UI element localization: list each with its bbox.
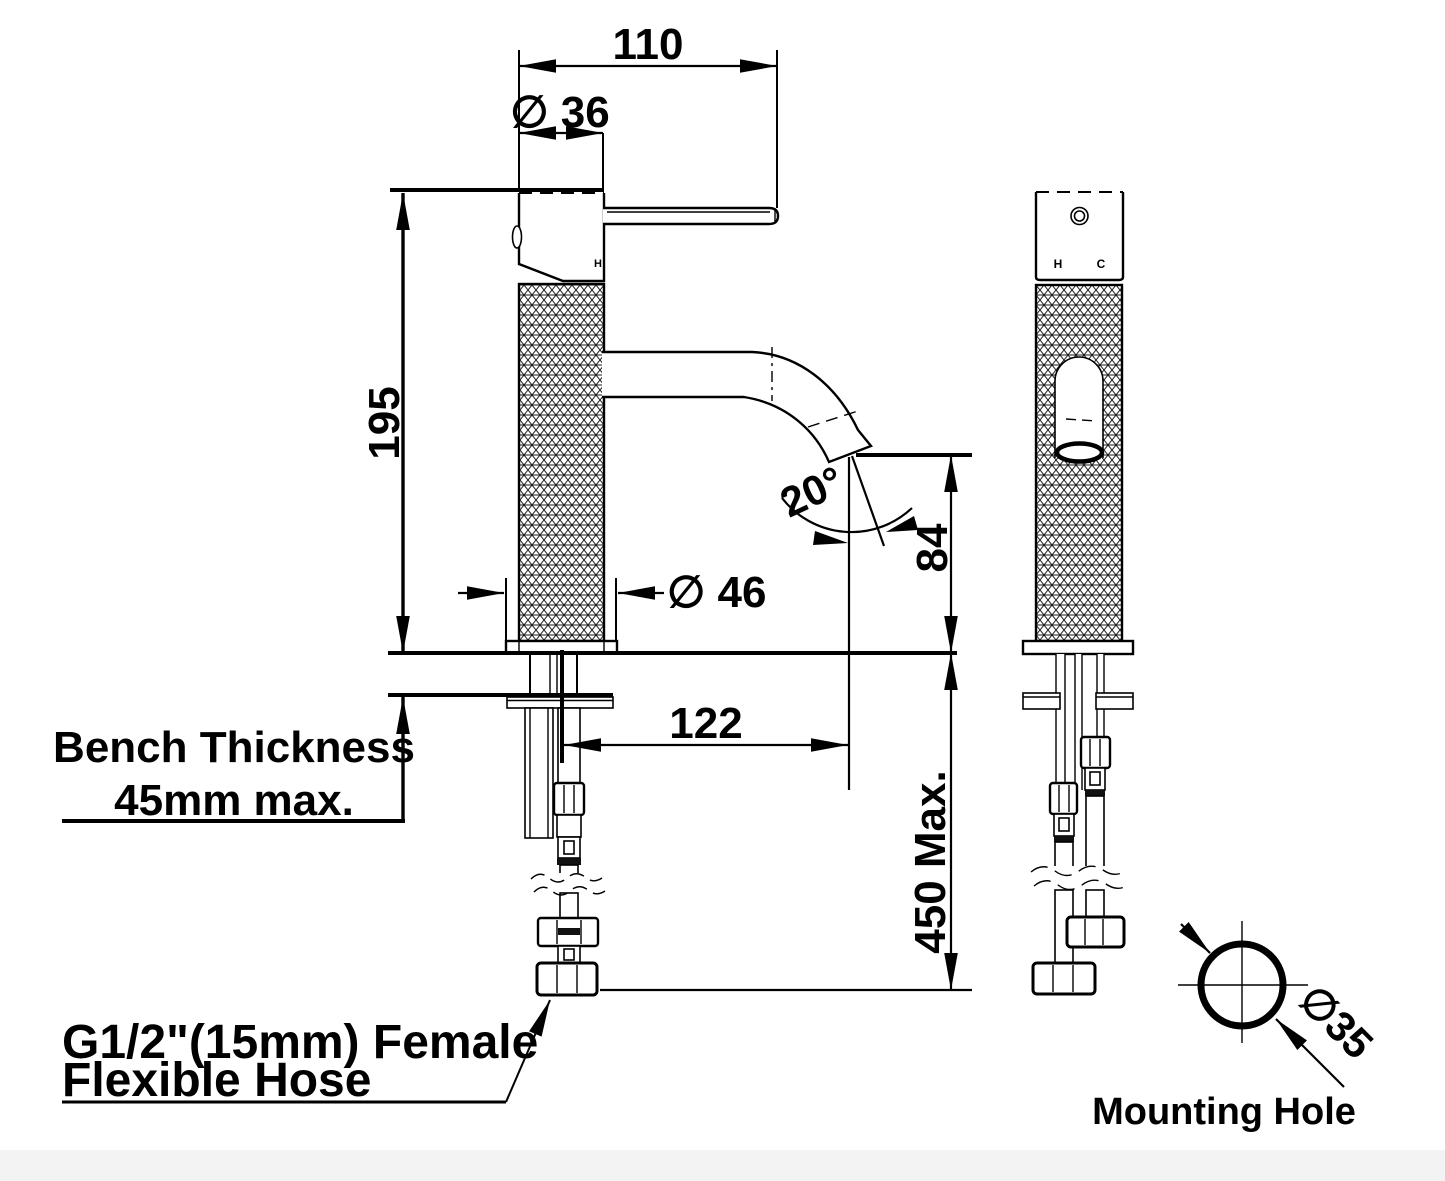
pivot-pin (513, 226, 522, 248)
dim-36-text: ∅ 36 (510, 88, 610, 137)
base-plate-front (1023, 641, 1133, 654)
shank-tube (525, 708, 553, 838)
spout-nozzle (1057, 444, 1102, 462)
bench-thickness-label-line2: 45mm max. (114, 776, 354, 825)
hose-elbow-hex-nut-front (1067, 917, 1124, 947)
dim-450-text: 450 Max. (906, 770, 955, 953)
mounting-hole-label: Mounting Hole (1092, 1091, 1356, 1133)
hot-marking-front: H (1054, 257, 1063, 271)
faucet-drawing: H (0, 0, 1445, 1181)
dim-84-text: 84 (908, 523, 957, 572)
hose-hex-fitting (554, 783, 584, 815)
hose-end-hex-nut-front (1033, 963, 1095, 994)
mixer-head: H (513, 193, 605, 281)
technical-drawing-page: H (0, 0, 1445, 1181)
dim-46-text: ∅ 46 (667, 568, 767, 617)
handle-lever (603, 208, 778, 224)
hose-label-line2: Flexible Hose (62, 1054, 371, 1107)
hot-marking-side: H (594, 258, 602, 270)
spout-front (1055, 357, 1103, 462)
cold-marking-front: C (1097, 257, 1106, 271)
dim-195-text: 195 (360, 386, 409, 459)
dim-122-text: 122 (669, 699, 742, 748)
dim-110-text: 110 (613, 20, 684, 69)
page-bottom-strip (0, 1150, 1445, 1181)
knurled-body (519, 284, 604, 641)
mixer-head-front: H C (1036, 192, 1123, 280)
bench-thickness-label-line1: Bench Thickness (53, 723, 415, 772)
hose-end-hex-nut (537, 963, 597, 995)
